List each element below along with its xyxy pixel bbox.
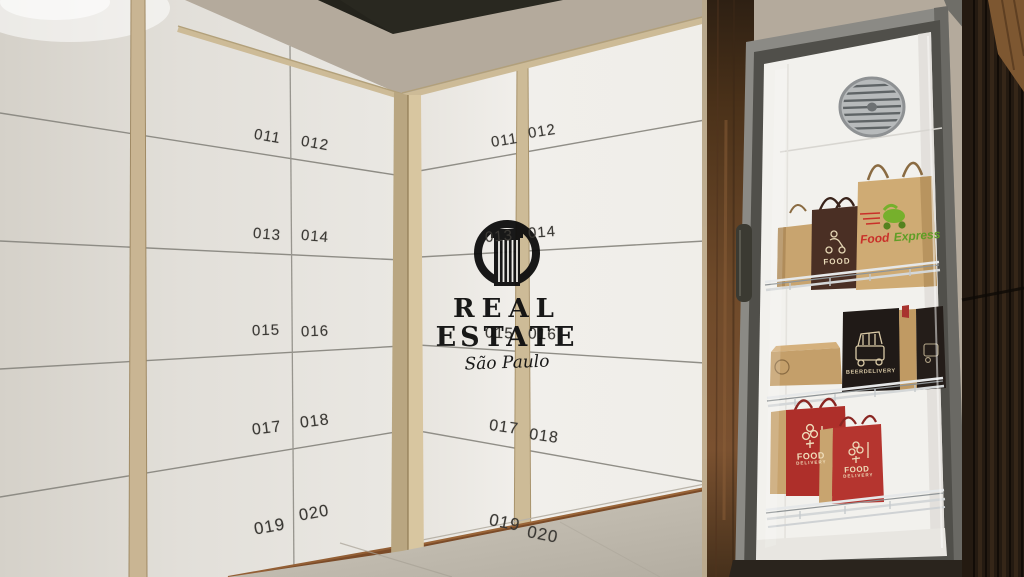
locker-number-right-013: 013 [484,227,513,246]
red-bag-front-label: FOOD DELIVERY [796,451,827,467]
left-wall-wood-strip [129,0,147,577]
locker-number-right-016: 016 [528,326,557,345]
brown-bag-label: FOOD [822,257,852,266]
red-bag-back-label: FOOD DELIVERY [843,465,872,480]
right-wood-slat-panel [962,0,1024,577]
locker-number-right-014: 014 [527,223,556,242]
locker-room-photo: 011 012 013 014 015 016 017 018 019 020 … [0,0,1024,577]
fridge-fan-icon [840,78,904,136]
locker-number-left-015: 015 [252,322,281,340]
locker-number-left-016: 016 [301,323,330,341]
scene-drawing [0,0,1024,577]
fridge-door-handle [736,224,752,302]
red-delivery-bag-back [819,416,884,504]
left-locker-wall [0,0,403,577]
kraft-box [770,342,842,386]
locker-number-right-015: 015 [485,325,514,344]
red-tag [902,305,909,318]
locker-number-left-017: 017 [251,418,283,439]
locker-number-left-018: 018 [299,411,331,432]
locker-number-left-013: 013 [252,225,281,244]
locker-number-left-014: 014 [300,227,329,246]
corner-trim [391,92,424,577]
beer-delivery-bag [842,308,901,392]
right-locker-wall [402,16,706,577]
